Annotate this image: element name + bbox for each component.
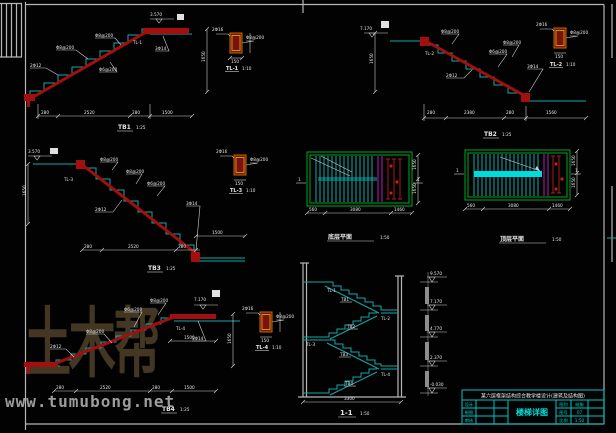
flight-beam-label: TL-2 (380, 316, 390, 321)
project-title: 某六层框架结构综合教学楼设计(建筑及结构图) (481, 393, 585, 400)
beam-tag: TL-4 (175, 326, 185, 331)
tb2-stair-beam (424, 40, 527, 97)
rebar-callout: Φ6@200 (489, 49, 507, 54)
rebar-callout: 3Φ14 (155, 46, 167, 51)
dim: 2520 (128, 244, 139, 249)
dim: 1650 (571, 155, 576, 166)
rebar-callout: Φ8@200 (246, 35, 264, 40)
rebar-callout: 2Φ12 (50, 344, 62, 349)
detail-scale: 1:10 (566, 62, 576, 67)
rebar-callout: 2Φ12 (95, 207, 107, 212)
tb4-stair-beam (54, 317, 174, 364)
beam-tag: TL-1 (132, 40, 142, 45)
view-scale: 1:25 (180, 407, 190, 412)
tb3-section-view: Φ8@200 Φ6@200 2Φ12 3Φ14 TL-3 Φ8@200 3.57… (22, 148, 268, 272)
dim: 1650 (22, 185, 27, 196)
detail-scale: 1:10 (272, 345, 282, 350)
dim: 280 (506, 110, 514, 115)
dim: 1650 (227, 333, 232, 344)
dim: 150 (235, 181, 243, 186)
detail-scale: 1:10 (246, 188, 256, 193)
level-value: 9.570 (430, 271, 442, 276)
level-value: 3.570 (150, 12, 162, 17)
plan-scale: 1:50 (552, 237, 562, 242)
dim: 150 (261, 338, 269, 343)
tb2-leaders (441, 34, 543, 92)
title-block: 某六层框架结构综合教学楼设计(建筑及结构图) 设计 制图 审核 楼梯详图 图别 … (462, 390, 604, 424)
plan-title: 底层平面 (328, 233, 352, 241)
titleblock-label: 图别 (559, 401, 567, 408)
flight-beam-label: TL-3 (305, 342, 315, 347)
adjacent-sheet-grid (0, 3, 22, 57)
dim: 1560 (546, 110, 557, 115)
dim: 3300 (344, 396, 355, 401)
rebar-callout: 2Φ16 (242, 306, 254, 311)
dim: 280 (56, 385, 64, 390)
rebar-callout: 2Φ12 (446, 73, 458, 78)
titleblock-role: 设计 (465, 401, 473, 408)
plan2-rebar-marks (551, 156, 563, 193)
level-value: 3.570 (28, 149, 40, 154)
plan2-landing-slab (474, 171, 542, 177)
detail-scale: 1:10 (242, 66, 252, 71)
titleblock-value: 1:50 (575, 418, 585, 423)
rebar-callout: Φ8@200 (276, 314, 294, 319)
plan1-treads (316, 156, 372, 202)
rebar-callout: Φ6@200 (147, 181, 165, 186)
plan-scale: 1:50 (380, 235, 390, 240)
dim: 150 (555, 54, 563, 59)
rebar-callout: Φ8@200 (150, 298, 168, 303)
rebar-callout: 3Φ14 (186, 201, 198, 206)
detail-title: TL-3 (230, 188, 243, 194)
dim: 1460 (394, 207, 405, 212)
dim: 1650 (412, 183, 417, 194)
view-scale: 1:25 (166, 266, 176, 271)
dim: 280 (41, 110, 49, 115)
dim: 1500 (184, 335, 195, 340)
rebar-callout: Φ8@200 (86, 329, 104, 334)
drawing-canvas: Φ8@200 2Φ12 Φ8@200 Φ6@200 3Φ14 TL-1 3.57… (0, 0, 616, 433)
level-value: 7.170 (430, 299, 442, 304)
dim: 1650 (412, 159, 417, 170)
view-title: TB3 (148, 265, 161, 272)
level-value: 2.370 (430, 355, 442, 360)
detail-title: TL-1 (226, 66, 239, 72)
rebar-callout: Φ6@200 (99, 67, 117, 72)
dim: 2520 (100, 385, 111, 390)
rebar-callout: Φ8@200 (126, 169, 144, 174)
titleblock-value: 07 (577, 410, 583, 415)
dim: 280 (132, 110, 140, 115)
view-title: 1-1 (340, 409, 353, 417)
tb1-landing-beam (143, 28, 189, 34)
view-title: TB1 (118, 124, 131, 131)
rebar-callout: Φ8@200 (56, 45, 74, 50)
level-value: 7.170 (194, 297, 206, 302)
dim: 280 (84, 244, 92, 249)
plan-title: 顶层平面 (500, 235, 524, 243)
flight-slab-label: TB2 (346, 324, 355, 329)
dim: 3080 (350, 207, 361, 212)
titleblock-label: 比例 (559, 417, 567, 424)
dim: 2380 (464, 110, 475, 115)
dim: 280 (427, 110, 435, 115)
dim: 1650 (201, 51, 206, 62)
rebar-callout: 2Φ16 (536, 22, 548, 27)
cad-sheet: 土木帮 (0, 0, 616, 433)
titleblock-role: 审核 (465, 417, 474, 424)
view-scale: 1:50 (360, 411, 370, 416)
rebar-callout: Φ8@200 (100, 157, 118, 162)
level-value: 4.770 (430, 326, 442, 331)
dim: 1460 (552, 203, 563, 208)
titleblock-label: 图号 (559, 410, 567, 416)
rebar-callout: Φ8@200 (570, 30, 588, 35)
rebar-callout: Φ8@200 (95, 33, 113, 38)
dim: 150 (231, 59, 239, 64)
flight-slab-label: TB1 (340, 297, 349, 302)
dim: 1650 (369, 53, 374, 64)
dim: 3080 (508, 203, 519, 208)
section-1-1-view: TL-1 TB1 TL-2 TB2 TL-3 TB3 TL-4 TB4 3300… (298, 263, 447, 417)
tb1-dims (36, 27, 209, 119)
section-mark: 1 (456, 168, 459, 173)
dim: 280 (152, 385, 160, 390)
flight-beam-label: TL-4 (380, 372, 390, 377)
rebar-callout: 3Φ14 (527, 64, 539, 69)
beam-tag: TL-2 (424, 51, 434, 56)
titleblock-value: 结施 (575, 401, 584, 408)
dim: 560 (467, 203, 475, 208)
detail-title: TL-2 (550, 62, 563, 68)
titleblock-role: 制图 (465, 409, 473, 416)
rebar-callout: Φ8@200 (441, 29, 459, 34)
rebar-callout: 2Φ16 (212, 27, 224, 32)
level-value: 7.170 (360, 26, 372, 31)
dim: 1500 (212, 230, 223, 235)
plan1-rebar-marks (386, 159, 402, 199)
rebar-callout: 2Φ12 (30, 63, 42, 68)
flight-slab-label: TB3 (339, 352, 348, 357)
rebar-callout: 2Φ16 (216, 149, 228, 154)
dim: 1650 (571, 177, 576, 188)
level-value: -0.030 (430, 382, 444, 387)
flight-beam-label: TL-1 (326, 288, 336, 293)
dim: 560 (309, 207, 317, 212)
watermark-site-url: www.tumubong.net (5, 392, 175, 411)
stair-plan-2: 1 1 560 3080 1460 1650 1650 顶层平面 1:50 (454, 149, 581, 243)
drawing-name: 楼梯详图 (516, 407, 548, 417)
stair-plan-1: 1 1 560 3080 1460 1650 1650 底层平面 1:50 (296, 152, 423, 241)
tb1-section-view: Φ8@200 2Φ12 Φ8@200 Φ6@200 3Φ14 TL-1 3.57… (24, 12, 264, 131)
dim: 1500 (162, 110, 173, 115)
rebar-callout: Φ6@200 (124, 307, 142, 312)
dim: 280 (178, 244, 186, 249)
tb4-landing-beam (170, 314, 216, 319)
detail-title: TL-4 (256, 345, 269, 351)
view-scale: 1:25 (502, 132, 512, 137)
beam-tag: TL-3 (63, 177, 73, 182)
dim: 1500 (184, 385, 195, 390)
rebar-callout: Φ8@200 (503, 40, 521, 45)
tb3-leaders (95, 162, 200, 250)
section-levels (420, 272, 447, 396)
view-title: TB2 (484, 131, 497, 138)
rebar-callout: Φ8@200 (250, 157, 268, 162)
tb1-stair-beam (28, 31, 148, 100)
flight-slab-label: TB4 (344, 381, 353, 386)
section-mark: 1 (298, 177, 301, 182)
tb2-section-view: Φ8@200 Φ6@200 2Φ12 3Φ14 TL-2 Φ8@200 7.17… (360, 21, 588, 138)
dim: 2520 (84, 110, 95, 115)
view-scale: 1:25 (136, 125, 146, 130)
